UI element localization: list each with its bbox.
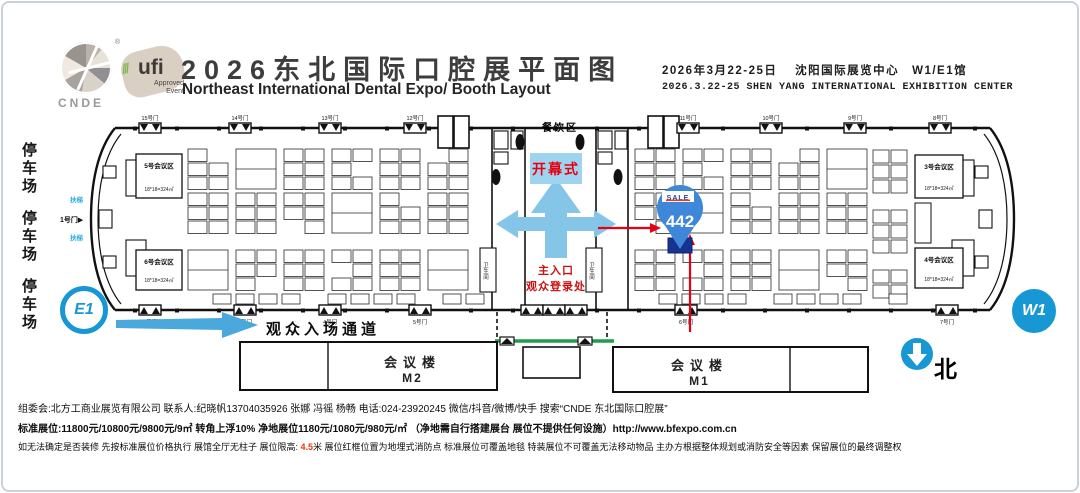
cnde-globe-icon <box>60 42 112 94</box>
opening-ceremony-box: 开幕式 <box>530 153 582 184</box>
meeting-area-4-label: 4号会议区 <box>916 254 962 264</box>
svg-text:12号门: 12号门 <box>406 114 423 122</box>
svg-text:7号门: 7号门 <box>940 318 954 326</box>
conference-building-m1-label: 会议楼 <box>622 355 777 374</box>
conference-building-m1-code: M1 <box>622 374 777 388</box>
svg-text:8号门: 8号门 <box>933 114 947 122</box>
svg-text:15号门: 15号门 <box>141 114 158 122</box>
ufi-logo-text: ufi <box>138 56 164 79</box>
meeting-area-5-label: 5号会议区 <box>137 160 181 170</box>
cnde-logo-text: CNDE <box>58 96 104 110</box>
visitor-channel-arrow-icon <box>116 312 258 338</box>
footer-notes: 如无法确定是否装修 先按标准展位价格执行 展馆全厅无柱子 展位限高: 4.5米 … <box>18 440 902 453</box>
opening-ceremony-label: 开幕式 <box>532 159 580 179</box>
entrance-flow-arrow-icon <box>496 178 616 258</box>
restroom-label-right: 卫生间 <box>587 252 595 290</box>
parking-label-3: 停车场 <box>18 278 39 332</box>
meeting-area-5-size: 18*18=324㎡ <box>137 186 181 193</box>
page-subtitle: Northeast International Dental Expo/ Boo… <box>182 81 551 99</box>
escalator-label-up: 扶梯 <box>70 194 83 204</box>
conference-building-m2-label: 会议楼 <box>335 352 490 371</box>
expo-floorplan-page: 15号门14号门13号门12号门11号门10号门9号门8号门2号门3号门4号门5… <box>0 0 1080 493</box>
pin-marker-442: SALE 442 <box>657 185 703 249</box>
meeting-area-6-label: 6号会议区 <box>137 256 181 266</box>
footer-notes-b: 米 展位红框位置为地埋式消防点 标准展位可覆盖地毯 特装展位不可覆盖无法移动物品… <box>313 442 902 452</box>
svg-text:5号门: 5号门 <box>413 318 427 326</box>
svg-text:11号门: 11号门 <box>680 114 697 122</box>
svg-text:13号门: 13号门 <box>321 114 338 122</box>
pin-booth-number: 442 <box>666 212 694 231</box>
main-entrance-label: 主入口 <box>520 262 592 278</box>
footer-organizer-contacts: 组委会:北方工商业展览有限公司 联系人:纪晓帆13704035926 张娜 冯徭… <box>18 400 668 415</box>
meeting-area-3-size: 18*18=324㎡ <box>916 185 962 192</box>
escalator-label-down: 扶梯 <box>70 232 83 242</box>
parking-label-1: 停车场 <box>18 142 39 196</box>
gate-1-label: 1号门▶ <box>60 215 83 225</box>
restroom-label-left: 卫生间 <box>481 252 489 290</box>
svg-text:14号门: 14号门 <box>231 114 248 122</box>
ufi-sub-line2: Event <box>134 88 184 96</box>
parking-label-2: 停车场 <box>18 210 39 264</box>
meeting-area-6-size: 18*18=324㎡ <box>137 277 181 284</box>
svg-text:9号门: 9号门 <box>848 114 862 122</box>
svg-text:10号门: 10号门 <box>762 114 779 122</box>
event-venue-en: 2026.3.22-25 SHEN YANG INTERNATIONAL EXH… <box>662 82 1013 93</box>
cnde-logo: ® <box>60 42 116 98</box>
registered-mark-icon: ® <box>115 39 120 46</box>
north-compass-icon <box>901 338 933 370</box>
meeting-area-4-size: 18*18=324㎡ <box>916 276 962 283</box>
footer-pricing: 标准展位:11800元/10800元/9800元/9㎡ 转角上浮10% 净地展位… <box>18 420 737 435</box>
footer-notes-a: 如无法确定是否装修 先按标准展位价格执行 展馆全厅无柱子 展位限高: <box>18 442 301 452</box>
visitor-channel-label: 观众入场通道 <box>266 318 380 339</box>
e1-gate-badge: E1 <box>60 286 108 334</box>
dining-area-label: 餐饮区 <box>520 119 600 134</box>
meeting-area-3-label: 3号会议区 <box>916 161 962 171</box>
north-label: 北 <box>934 350 957 384</box>
conference-building-m2-code: M2 <box>335 371 490 385</box>
footer-height-limit: 4.5 <box>301 442 314 452</box>
w1-gate-badge: W1 <box>1012 289 1056 333</box>
event-date-cn: 2026年3月22-25日 沈阳国际展览中心 W1/E1馆 <box>662 62 967 78</box>
ufi-sub-line1: Approved <box>134 80 184 88</box>
